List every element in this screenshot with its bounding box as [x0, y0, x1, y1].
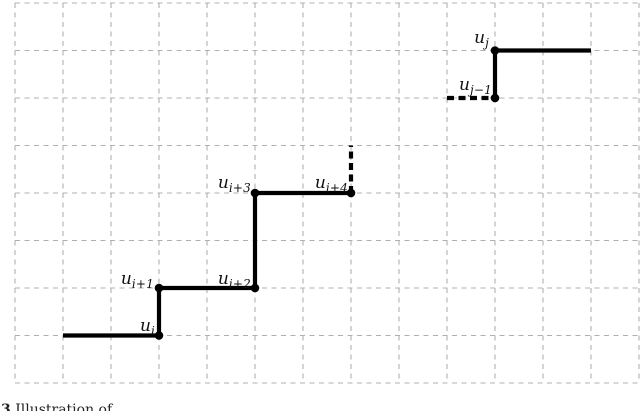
label-subscript-u-i-plus-1: i+1 [132, 277, 154, 291]
label-subscript-u-i-plus-2: i+2 [229, 277, 251, 291]
label-base-u-j-minus-1: u [459, 75, 470, 95]
label-u-i-plus-2: ui+2 [218, 271, 251, 288]
grid-point-dot [251, 189, 260, 198]
label-base-u-i-plus-1: u [121, 269, 132, 289]
figure-caption-clipped: 3 Illustration of [1, 402, 112, 411]
staircase-plot-canvas [0, 0, 640, 411]
figure-step-function-diagram: uiui+1ui+2ui+3ui+4uj−1uj 3 Illustration … [0, 0, 640, 411]
label-subscript-u-i: i [151, 324, 155, 338]
label-subscript-u-i-plus-3: i+3 [229, 181, 251, 195]
grid-point-dot [155, 284, 164, 293]
label-u-i: ui [140, 318, 155, 335]
label-u-i-plus-4: ui+4 [315, 175, 348, 192]
label-base-u-i-plus-3: u [218, 173, 229, 193]
label-subscript-u-i-plus-4: i+4 [326, 181, 348, 195]
label-base-u-j: u [474, 28, 485, 48]
label-u-j: uj [474, 30, 489, 47]
grid-point-dot [491, 46, 500, 55]
label-subscript-u-j-minus-1: j−1 [470, 83, 492, 97]
label-subscript-u-j: j [485, 36, 489, 50]
grid-point-dot [155, 331, 164, 340]
label-u-i-plus-3: ui+3 [218, 175, 251, 192]
caption-text: Illustration of [15, 402, 112, 411]
label-u-i-plus-1: ui+1 [121, 271, 154, 288]
label-base-u-i-plus-2: u [218, 269, 229, 289]
label-u-j-minus-1: uj−1 [459, 77, 492, 94]
caption-figure-number: 3 [1, 402, 11, 411]
label-base-u-i: u [140, 316, 151, 336]
label-base-u-i-plus-4: u [315, 173, 326, 193]
grid-point-dot [251, 284, 260, 293]
